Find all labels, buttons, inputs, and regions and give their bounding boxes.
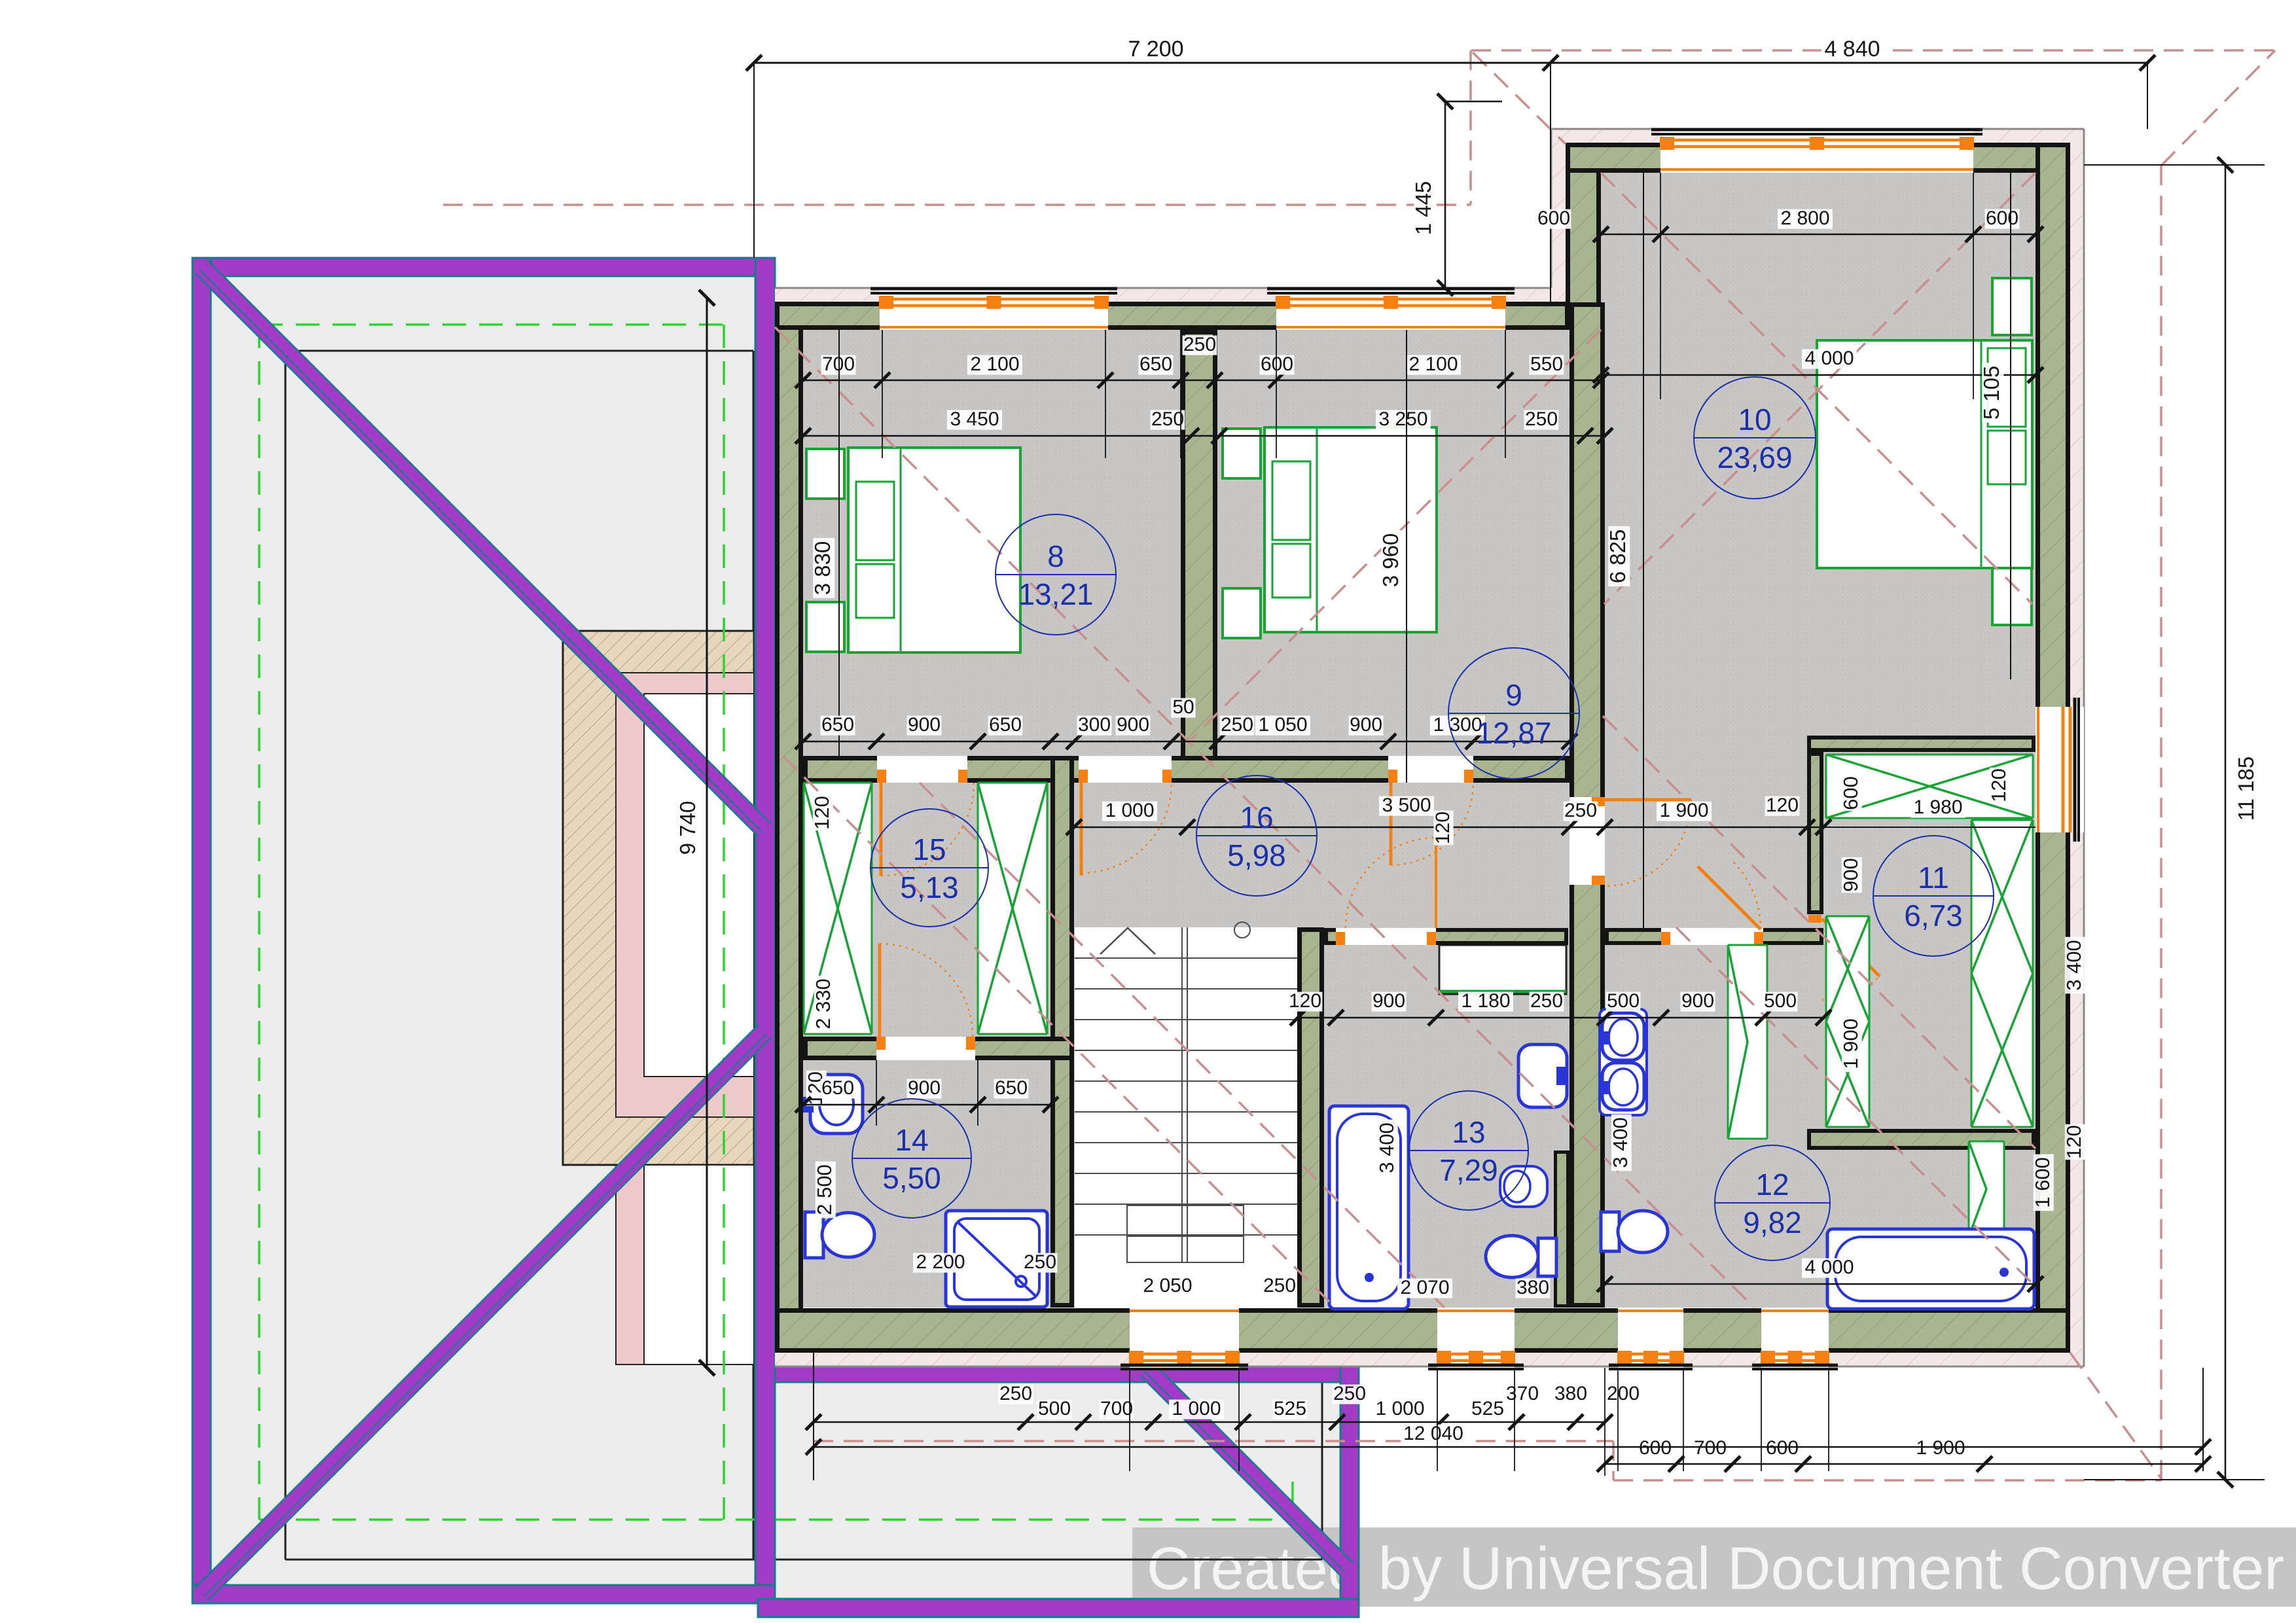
svg-text:120: 120 [1766,794,1799,816]
svg-text:23,69: 23,69 [1717,440,1792,474]
svg-text:900: 900 [908,1077,941,1099]
svg-text:250: 250 [1151,408,1184,430]
svg-text:380: 380 [1554,1383,1587,1404]
svg-text:700: 700 [1100,1398,1133,1419]
svg-text:1 050: 1 050 [1258,714,1307,736]
svg-text:250: 250 [1263,1275,1296,1296]
svg-text:1 000: 1 000 [1375,1398,1424,1419]
svg-text:10: 10 [1738,402,1771,437]
svg-text:650: 650 [821,1077,854,1099]
svg-text:16: 16 [1240,800,1273,834]
svg-text:650: 650 [821,714,854,736]
svg-text:12 040: 12 040 [1403,1423,1463,1444]
svg-text:900: 900 [1117,714,1149,736]
svg-text:550: 550 [1530,353,1563,375]
svg-text:12,87: 12,87 [1476,716,1551,750]
svg-text:5,13: 5,13 [900,870,959,904]
svg-text:4 840: 4 840 [1824,37,1880,62]
svg-text:650: 650 [995,1077,1028,1099]
svg-text:900: 900 [1350,714,1382,736]
svg-text:15: 15 [912,832,946,866]
svg-text:7,29: 7,29 [1439,1153,1498,1187]
svg-text:300: 300 [1078,714,1111,736]
svg-text:2 070: 2 070 [1400,1277,1449,1298]
svg-text:500: 500 [1607,990,1640,1012]
svg-text:500: 500 [1764,990,1797,1012]
svg-text:900: 900 [1681,990,1714,1012]
svg-text:250: 250 [1564,800,1597,821]
svg-text:600: 600 [1537,207,1570,229]
svg-text:2 100: 2 100 [970,353,1019,375]
svg-text:6 825: 6 825 [1605,529,1630,584]
svg-text:1 000: 1 000 [1105,800,1154,821]
svg-text:1 900: 1 900 [1839,1018,1862,1069]
svg-text:12: 12 [1755,1168,1789,1202]
svg-text:120: 120 [810,796,833,830]
svg-text:4 000: 4 000 [1804,1257,1854,1278]
svg-text:2 330: 2 330 [812,978,834,1029]
svg-text:2 200: 2 200 [916,1251,965,1273]
svg-text:250: 250 [1221,714,1253,736]
svg-text:4 000: 4 000 [1804,348,1854,369]
svg-text:120: 120 [1289,990,1321,1012]
svg-text:250: 250 [1024,1251,1056,1273]
svg-text:9 740: 9 740 [675,801,700,855]
svg-text:200: 200 [1607,1383,1640,1404]
svg-text:6,73: 6,73 [1904,899,1963,933]
svg-text:9: 9 [1505,678,1522,712]
svg-text:500: 500 [1038,1398,1071,1419]
svg-text:1 980: 1 980 [1913,796,1962,818]
svg-text:3 830: 3 830 [810,541,834,596]
svg-text:13: 13 [1452,1115,1485,1149]
svg-text:250: 250 [1525,408,1558,430]
svg-text:650: 650 [1139,353,1172,375]
svg-text:650: 650 [989,714,1022,736]
svg-text:380: 380 [1516,1277,1549,1298]
svg-text:250: 250 [1183,334,1216,355]
svg-text:13,21: 13,21 [1018,577,1093,611]
svg-text:11 185: 11 185 [2234,757,2258,821]
svg-text:3 400: 3 400 [2062,940,2085,991]
svg-text:700: 700 [1694,1437,1727,1459]
svg-text:600: 600 [1766,1437,1799,1459]
svg-text:600: 600 [1839,776,1862,810]
svg-text:50: 50 [1172,696,1194,718]
svg-text:1 300: 1 300 [1433,714,1482,736]
svg-text:250: 250 [1530,990,1563,1012]
svg-text:900: 900 [1839,858,1862,892]
svg-text:5,98: 5,98 [1227,838,1286,872]
svg-text:2 100: 2 100 [1408,353,1458,375]
svg-text:120: 120 [1432,811,1454,844]
svg-text:5 105: 5 105 [1979,366,2003,420]
svg-text:3 450: 3 450 [950,408,999,430]
svg-text:3 960: 3 960 [1378,533,1403,588]
svg-text:1 000: 1 000 [1172,1398,1221,1419]
svg-text:7 200: 7 200 [1128,37,1183,62]
svg-text:14: 14 [895,1123,928,1157]
svg-text:250: 250 [999,1383,1032,1404]
svg-text:1 900: 1 900 [1659,800,1708,821]
svg-text:525: 525 [1274,1398,1306,1419]
svg-text:1 900: 1 900 [1916,1437,1965,1459]
svg-text:525: 525 [1471,1398,1504,1419]
svg-text:9,82: 9,82 [1743,1205,1802,1240]
svg-text:120: 120 [1987,768,2010,802]
svg-text:250: 250 [1333,1383,1366,1404]
svg-text:1 180: 1 180 [1461,990,1510,1012]
svg-text:8: 8 [1047,539,1064,573]
svg-text:370: 370 [1506,1383,1539,1404]
svg-text:600: 600 [1986,207,2018,229]
svg-text:2 800: 2 800 [1780,207,1829,229]
svg-text:2 050: 2 050 [1143,1275,1192,1296]
svg-text:3 500: 3 500 [1382,794,1431,816]
svg-text:120: 120 [2062,1125,2085,1159]
svg-text:1 600: 1 600 [2031,1157,2054,1208]
svg-text:3 400: 3 400 [1609,1117,1632,1168]
svg-text:900: 900 [908,714,941,736]
svg-text:3 400: 3 400 [1375,1122,1398,1173]
svg-text:600: 600 [1261,353,1293,375]
svg-text:11: 11 [1918,861,1949,895]
svg-text:5,50: 5,50 [882,1161,941,1195]
svg-text:900: 900 [1372,990,1405,1012]
svg-text:3 250: 3 250 [1378,408,1427,430]
svg-text:1 445: 1 445 [1411,181,1435,236]
svg-text:2 500: 2 500 [813,1164,836,1215]
svg-text:600: 600 [1639,1437,1672,1459]
